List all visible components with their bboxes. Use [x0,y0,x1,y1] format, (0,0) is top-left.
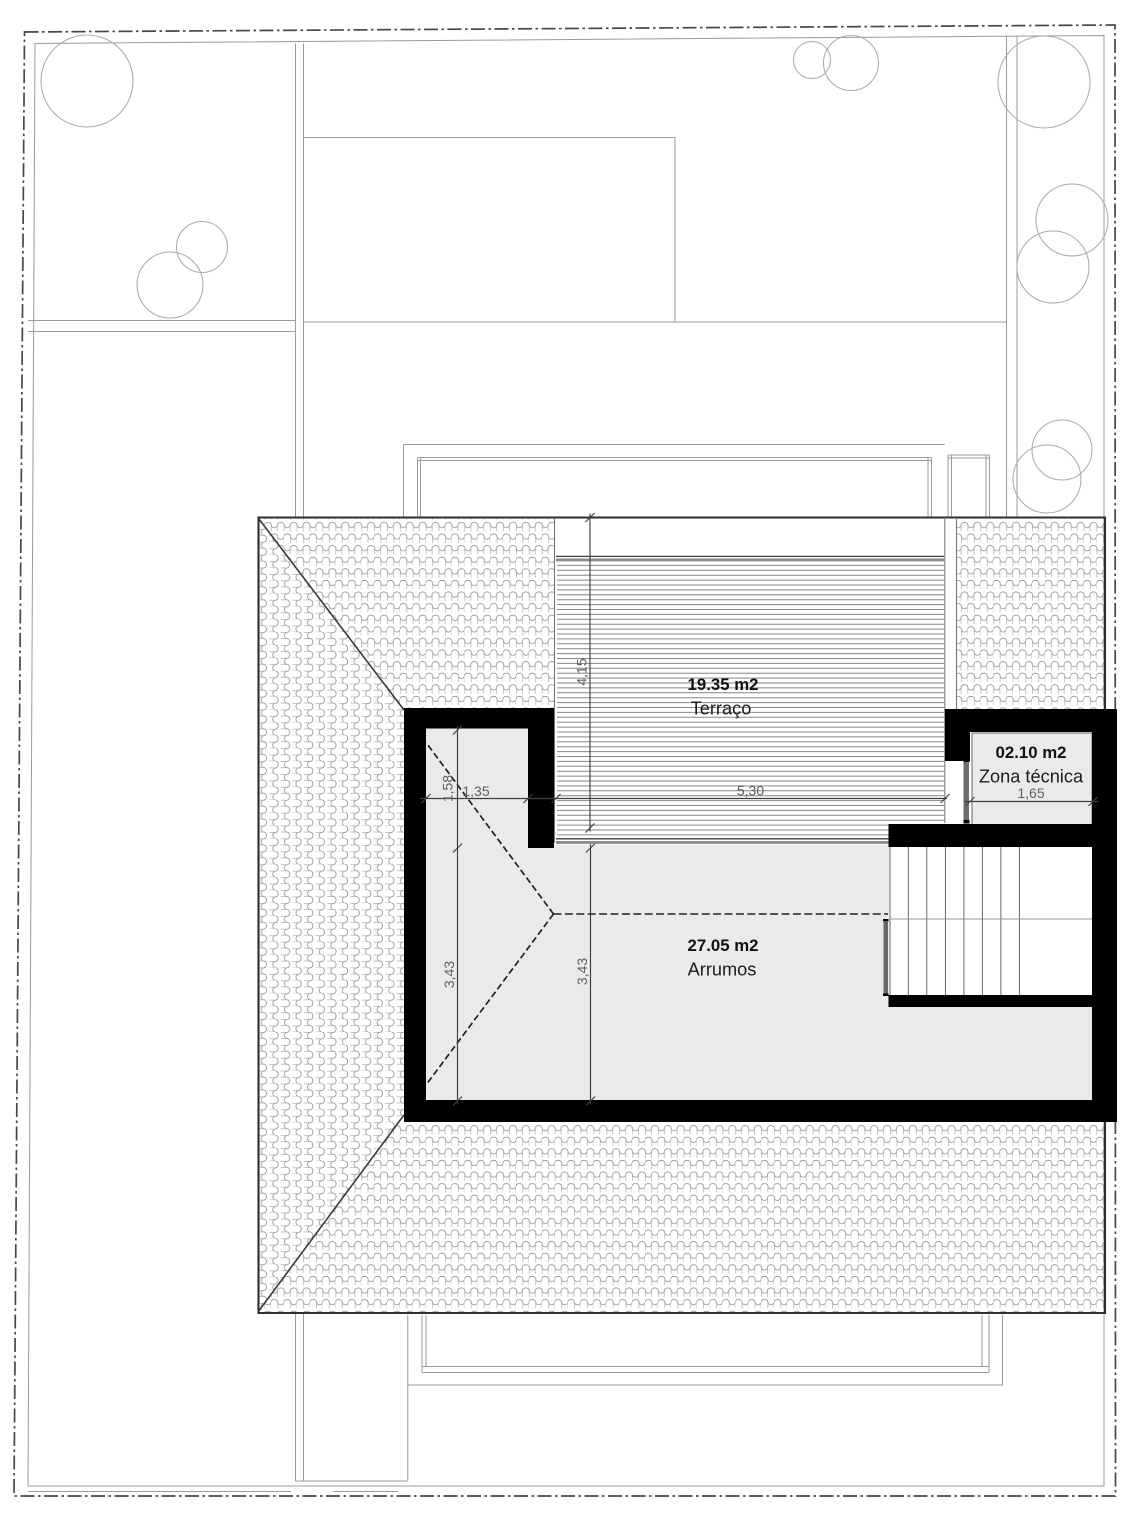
svg-text:19.35 m2: 19.35 m2 [688,675,759,694]
svg-text:Terraço: Terraço [691,699,752,719]
svg-text:5,30: 5,30 [737,783,764,799]
svg-text:4,15: 4,15 [574,658,590,685]
svg-text:Arrumos: Arrumos [688,960,757,980]
svg-text:3,43: 3,43 [441,961,457,988]
svg-text:27.05 m2: 27.05 m2 [688,936,759,955]
svg-text:Zona técnica: Zona técnica [979,767,1084,787]
svg-text:1,65: 1,65 [1017,785,1044,801]
svg-text:02.10 m2: 02.10 m2 [996,743,1067,762]
svg-text:3,43: 3,43 [574,958,590,985]
svg-text:1,35: 1,35 [462,783,489,799]
svg-text:1,58: 1,58 [440,775,456,802]
